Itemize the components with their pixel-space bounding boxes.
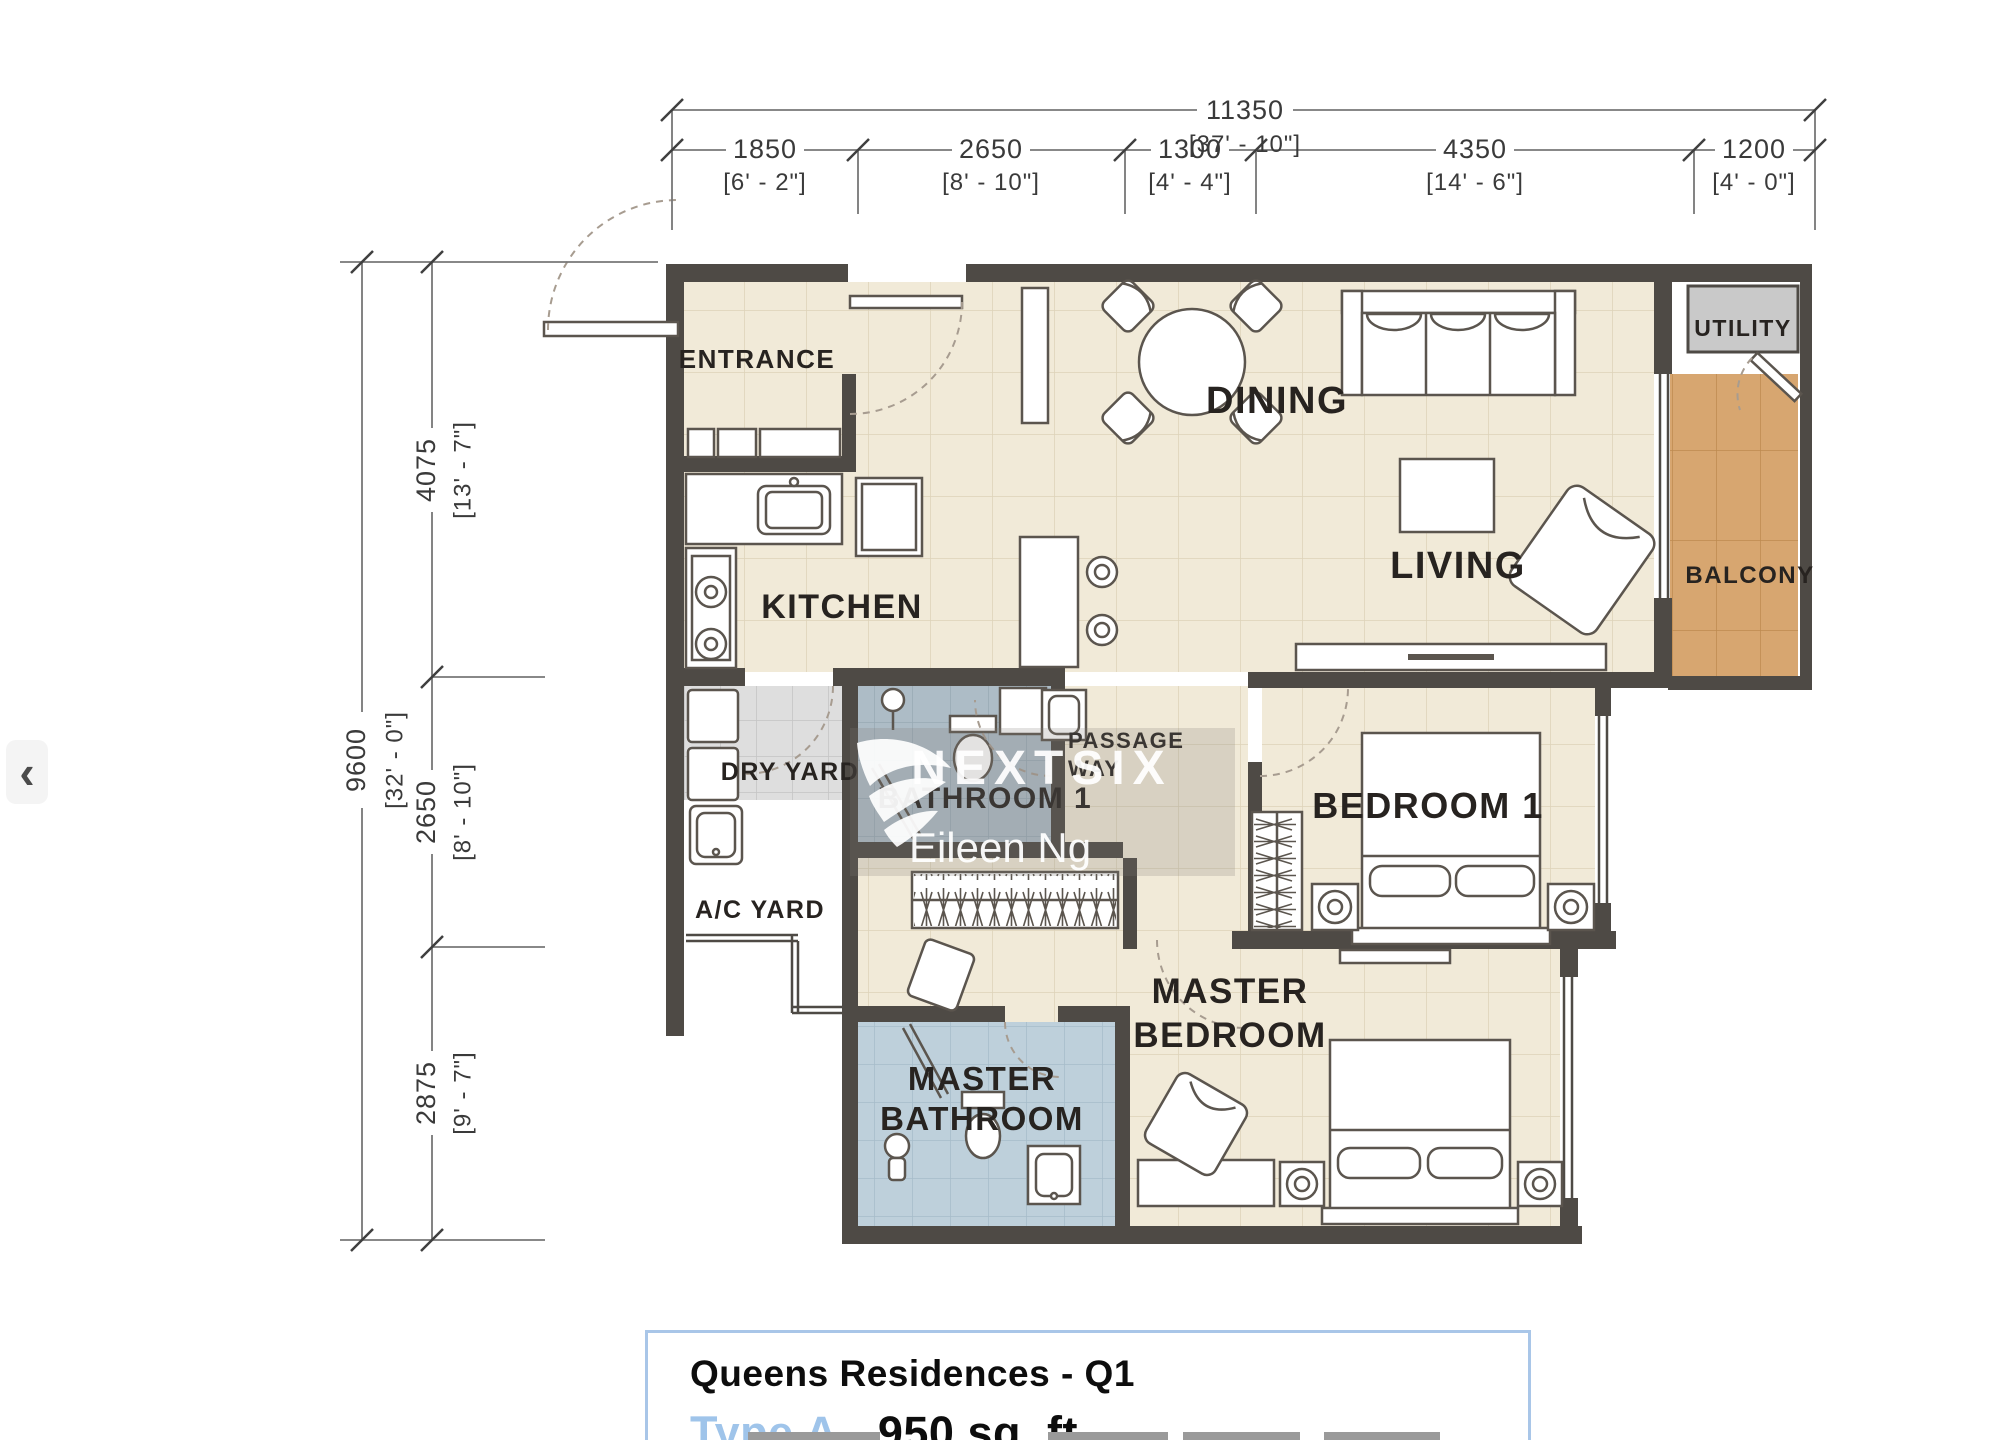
shoe-cabinet [688, 429, 714, 457]
pillow [1428, 1148, 1502, 1178]
dining-cabinet [1022, 288, 1048, 423]
pillow [1338, 1148, 1420, 1178]
bed [1362, 733, 1540, 930]
label-master-bedroom-1: MASTER [1152, 972, 1309, 1011]
dim-seg-ft: [8' - 10"] [942, 169, 1040, 196]
headboard [1322, 1208, 1518, 1224]
island-counter [1020, 537, 1078, 667]
dim-seg-mm: 1850 [733, 134, 797, 164]
dim-left-total-mm: 9600 [341, 728, 371, 792]
headboard [1352, 928, 1550, 944]
dim-left-total-ft: [32' - 0"] [381, 711, 408, 809]
watermark: NEXTSIX Eileen Ng [850, 728, 1235, 876]
label-dry-yard: DRY YARD [721, 758, 859, 786]
shelf [1340, 950, 1450, 963]
pillow [1370, 866, 1450, 896]
washer [688, 690, 738, 742]
watermark-agent: Eileen Ng [909, 824, 1091, 871]
carousel-prev-button[interactable]: ‹ [6, 740, 48, 804]
bath-niche [1000, 688, 1046, 734]
label-master-bathroom-2: BATHROOM [880, 1100, 1084, 1137]
dim-top-total-mm: 11350 [1206, 95, 1284, 125]
pedestal-sink [885, 1134, 909, 1158]
cutoff-bar [748, 1432, 880, 1440]
label-dining: DINING [1206, 380, 1348, 422]
entry-door-leaf [850, 296, 962, 308]
bed [1330, 1040, 1510, 1212]
label-balcony: BALCONY [1685, 562, 1814, 589]
floor-balcony [1670, 374, 1798, 676]
cutoff-bar [1048, 1432, 1168, 1440]
dim-seg-ft: [14' - 6"] [1426, 169, 1524, 196]
label-entrance: ENTRANCE [679, 344, 835, 374]
label-living: LIVING [1390, 545, 1526, 587]
entry-door-leaf-outside [544, 322, 678, 336]
dim-seg-mm: 2650 [959, 134, 1023, 164]
dim-seg-mm: 4350 [1443, 134, 1507, 164]
cutoff-bar [1324, 1432, 1440, 1440]
label-kitchen: KITCHEN [761, 588, 923, 626]
dim-seg-ft: [4' - 4"] [1148, 169, 1231, 196]
dim-seg-mm: 4075 [411, 438, 441, 502]
sofa-arm [1555, 291, 1575, 395]
sofa-back [1342, 291, 1575, 313]
dim-seg-mm: 2650 [411, 780, 441, 844]
label-master-bathroom-1: MASTER [908, 1060, 1056, 1097]
title-block: Queens Residences - Q1 Type A - 950 sq. … [645, 1330, 1531, 1440]
dim-seg-ft: [8' - 10"] [449, 763, 476, 861]
label-utility: UTILITY [1694, 315, 1791, 341]
shower-head [882, 689, 904, 711]
cutoff-bar [1183, 1432, 1300, 1440]
floorplan-page: 11350 [37' - 10"] 1850 [6' - 2"] 2650 [8… [0, 0, 2000, 1440]
project-title: Queens Residences - Q1 [690, 1353, 1528, 1395]
shoe-cabinet [718, 429, 756, 457]
dim-seg-mm: 1200 [1722, 134, 1786, 164]
floorplan-drawing: 11350 [37' - 10"] 1850 [6' - 2"] 2650 [8… [0, 0, 2000, 1440]
dim-seg-mm: 2875 [411, 1061, 441, 1125]
dim-seg-ft: [4' - 0"] [1712, 169, 1795, 196]
dim-seg-ft: [13' - 7"] [449, 421, 476, 519]
chevron-left-icon: ‹ [19, 745, 34, 799]
dim-seg-ft: [6' - 2"] [723, 169, 806, 196]
dim-seg-mm: 1300 [1158, 134, 1222, 164]
label-bedroom1: BEDROOM 1 [1312, 785, 1544, 826]
coffee-table [1400, 459, 1494, 532]
watermark-brand: NEXTSIX [911, 742, 1172, 795]
shoe-cabinet [760, 429, 840, 457]
label-master-bedroom-2: BEDROOM [1133, 1016, 1326, 1055]
kitchen-faucet [790, 478, 798, 486]
label-ac-yard: A/C YARD [695, 896, 825, 924]
pillow [1456, 866, 1534, 896]
dim-seg-ft: [9' - 7"] [449, 1051, 476, 1134]
